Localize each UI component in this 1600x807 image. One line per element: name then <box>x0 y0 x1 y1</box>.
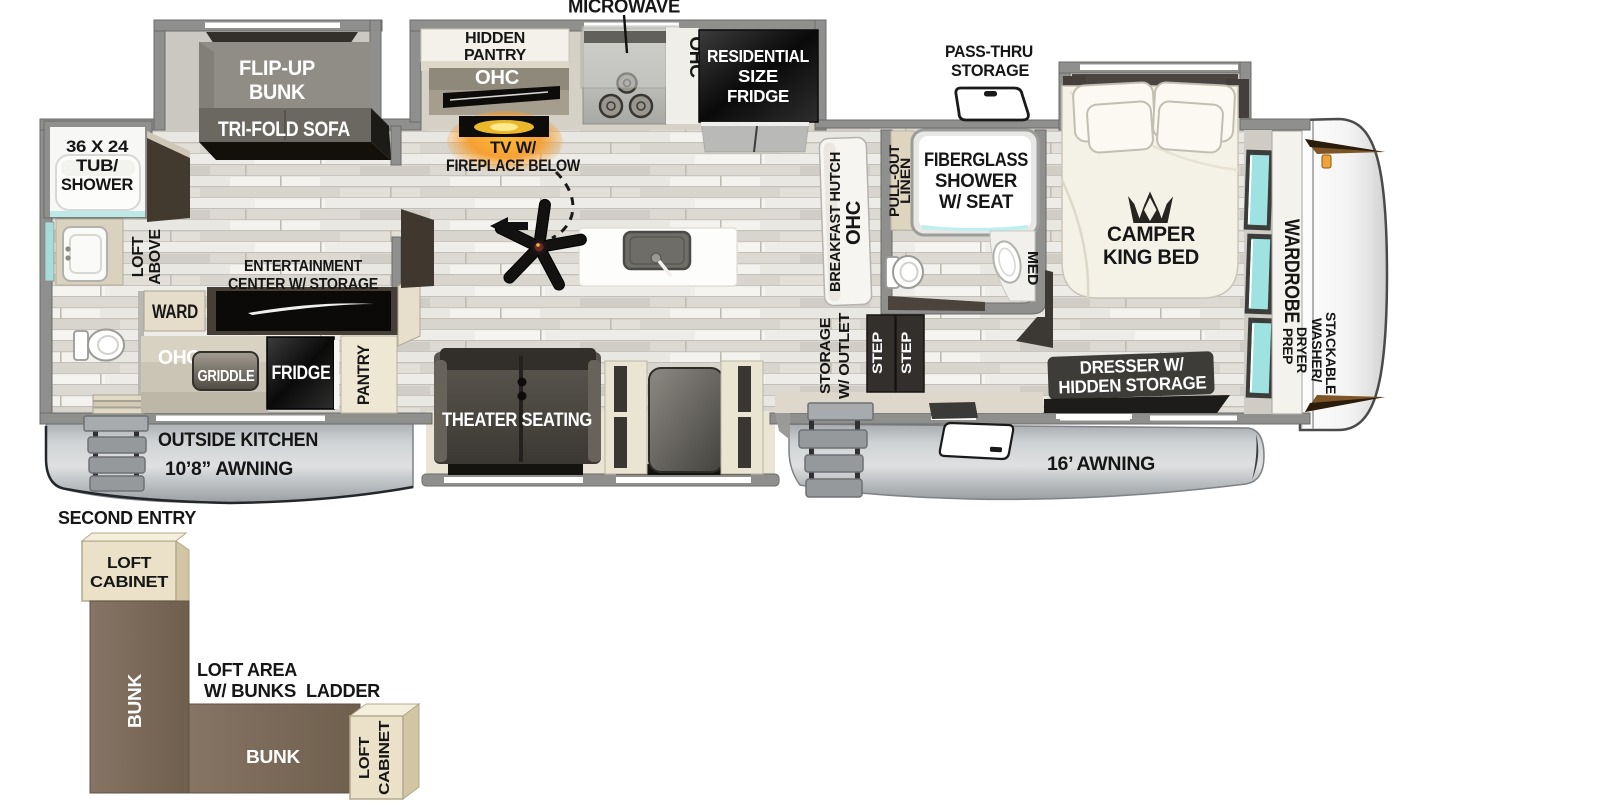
svg-text:LOFT AREA: LOFT AREA <box>197 659 297 680</box>
svg-text:W/ OUTLET: W/ OUTLET <box>837 313 853 399</box>
svg-text:DRYER: DRYER <box>1294 327 1309 374</box>
svg-text:OHC: OHC <box>843 201 865 245</box>
svg-text:10’8” AWNING: 10’8” AWNING <box>165 459 293 480</box>
svg-text:FRIDGE: FRIDGE <box>272 363 331 384</box>
svg-text:TV W/: TV W/ <box>490 139 537 157</box>
svg-text:SHOWER: SHOWER <box>61 176 133 194</box>
svg-text:OUTSIDE KITCHEN: OUTSIDE KITCHEN <box>158 430 318 451</box>
svg-text:W/ BUNKS: W/ BUNKS <box>204 680 296 701</box>
svg-text:HIDDEN: HIDDEN <box>465 30 525 47</box>
svg-text:PREP: PREP <box>1280 328 1295 364</box>
svg-text:CAMPER: CAMPER <box>1107 222 1196 246</box>
svg-text:BUNK: BUNK <box>124 673 145 728</box>
svg-text:THEATER SEATING: THEATER SEATING <box>442 409 592 431</box>
svg-text:SHOWER: SHOWER <box>935 171 1018 192</box>
svg-text:TRI-FOLD SOFA: TRI-FOLD SOFA <box>218 118 350 141</box>
svg-text:CABINET: CABINET <box>376 721 393 795</box>
svg-text:MED: MED <box>1024 251 1040 285</box>
svg-text:FRIDGE: FRIDGE <box>727 86 789 106</box>
svg-text:FIREPLACE BELOW: FIREPLACE BELOW <box>446 157 581 175</box>
svg-text:BREAKFAST HUTCH: BREAKFAST HUTCH <box>828 152 844 292</box>
svg-text:ENTERTAINMENT: ENTERTAINMENT <box>244 258 362 275</box>
svg-text:MICROWAVE: MICROWAVE <box>568 0 680 18</box>
svg-text:LOFT: LOFT <box>356 737 373 779</box>
svg-text:SIZE: SIZE <box>738 66 778 86</box>
svg-text:STORAGE: STORAGE <box>818 317 834 394</box>
svg-text:LOFT: LOFT <box>130 236 147 277</box>
svg-text:STEP: STEP <box>898 332 914 374</box>
svg-text:RESIDENTIAL: RESIDENTIAL <box>707 46 810 66</box>
svg-text:W/ SEAT: W/ SEAT <box>939 192 1014 213</box>
svg-text:CABINET: CABINET <box>90 574 169 591</box>
svg-text:TUB/: TUB/ <box>76 157 119 175</box>
svg-text:FLIP-UP: FLIP-UP <box>239 57 315 80</box>
svg-text:GRIDDLE: GRIDDLE <box>198 368 255 385</box>
svg-text:36 X 24: 36 X 24 <box>66 138 129 156</box>
svg-text:ABOVE: ABOVE <box>147 229 164 285</box>
svg-text:FIBERGLASS: FIBERGLASS <box>924 150 1028 171</box>
svg-text:SECOND ENTRY: SECOND ENTRY <box>58 507 197 528</box>
svg-text:16’ AWNING: 16’ AWNING <box>1047 454 1155 475</box>
svg-text:LADDER: LADDER <box>306 680 380 701</box>
svg-text:WASHER/: WASHER/ <box>1309 318 1324 383</box>
svg-text:BUNK: BUNK <box>246 746 301 767</box>
svg-text:STORAGE: STORAGE <box>951 62 1029 80</box>
svg-text:STACKABLE: STACKABLE <box>1323 312 1338 394</box>
svg-text:PANTRY: PANTRY <box>464 47 527 64</box>
svg-text:OHC: OHC <box>475 67 519 89</box>
svg-text:WARDROBE: WARDROBE <box>1280 219 1304 323</box>
svg-text:KING BED: KING BED <box>1103 245 1199 269</box>
svg-text:WARD: WARD <box>152 302 198 323</box>
svg-text:PANTRY: PANTRY <box>355 345 373 405</box>
svg-text:LOFT: LOFT <box>107 555 152 572</box>
svg-text:BUNK: BUNK <box>249 81 305 104</box>
svg-text:CENTER W/ STORAGE: CENTER W/ STORAGE <box>228 276 379 293</box>
svg-text:PASS-THRU: PASS-THRU <box>945 43 1033 61</box>
svg-text:STEP: STEP <box>869 332 885 374</box>
